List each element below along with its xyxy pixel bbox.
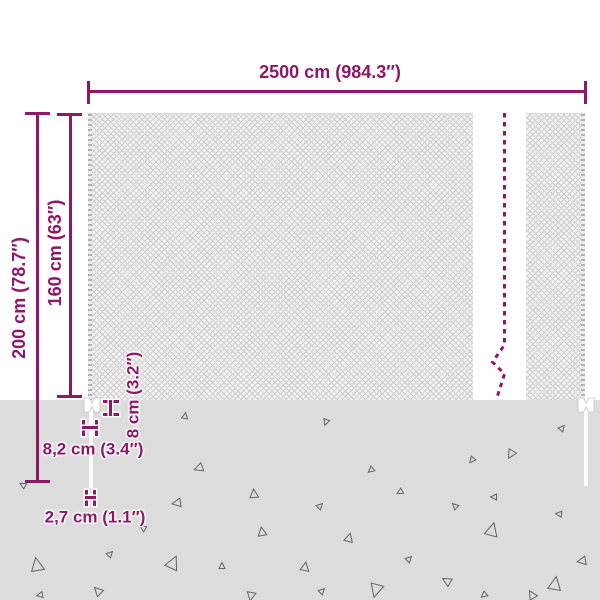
dim-anchor-depth-label: 8 cm (3.2″) — [125, 352, 142, 439]
dim-anchor-width-label: 8,2 cm (3.4″) — [43, 441, 144, 458]
dim-anchor-depth-stem — [109, 400, 112, 416]
dim-anchor-width-stem — [82, 426, 98, 429]
dim-total-height-line — [36, 113, 39, 483]
anchor-peg-right-icon — [577, 397, 595, 413]
dim-total-width-cap-left — [87, 81, 90, 104]
net-break-dashed-line — [480, 110, 530, 402]
dim-total-height-label: 200 cm (78.7″) — [10, 237, 28, 359]
net-edge-binding-left — [88, 114, 92, 400]
dim-net-height-cap-top — [57, 113, 82, 116]
dim-net-height-line — [69, 114, 72, 398]
dim-total-height-cap-top — [25, 112, 50, 115]
net-panel-right — [526, 113, 585, 400]
dim-total-height-cap-bottom — [25, 480, 50, 483]
net-panel-left — [88, 113, 473, 400]
dim-net-height-label: 160 cm (63″) — [46, 200, 64, 307]
dim-post-width-label: 2,7 cm (1.1″) — [45, 509, 146, 526]
anchor-peg-left-icon — [83, 397, 101, 413]
dim-total-width-line — [88, 90, 587, 93]
dim-total-width-label: 2500 cm (984.3″) — [259, 63, 401, 81]
net-edge-binding-right — [581, 114, 585, 400]
fence-net-dimension-diagram: 2500 cm (984.3″) 200 cm (78.7″) 160 cm (… — [0, 0, 600, 600]
dim-net-height-cap-bottom — [57, 395, 82, 398]
dim-total-width-cap-right — [584, 81, 587, 104]
dim-post-width-stem — [85, 496, 96, 499]
